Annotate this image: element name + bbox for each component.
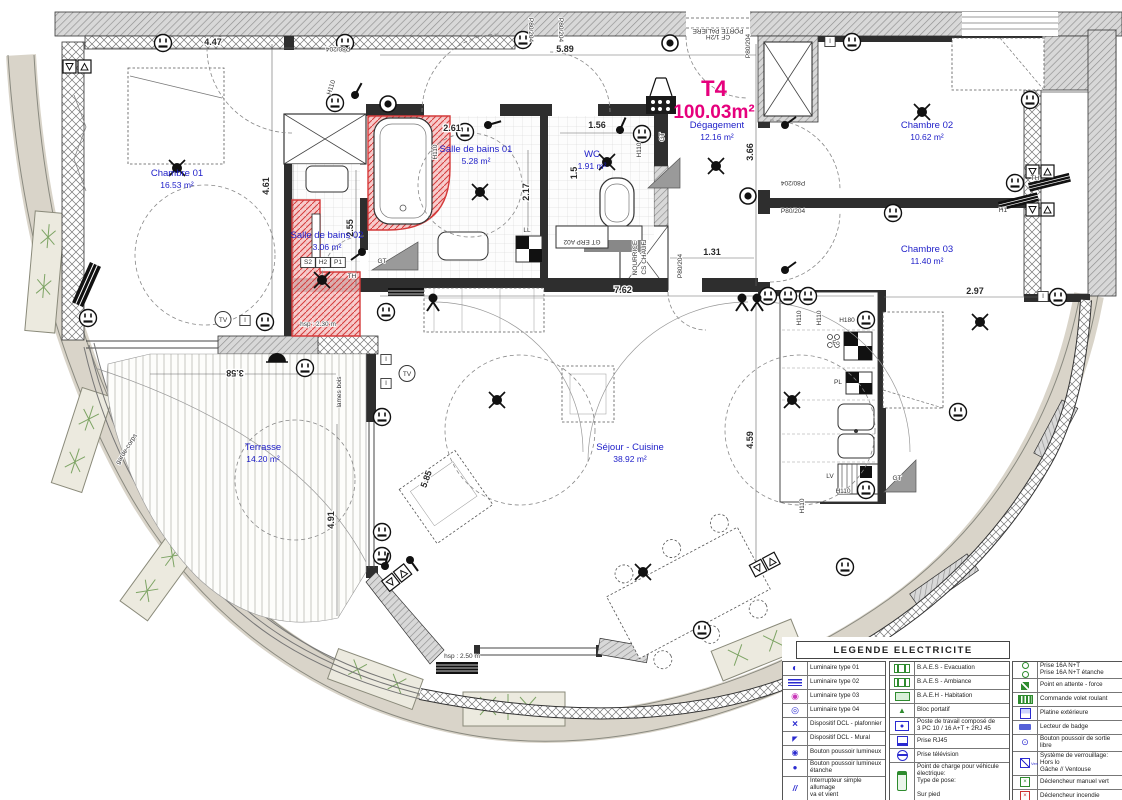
bathtub	[374, 118, 432, 224]
tag-p80-204: P80/204	[677, 254, 684, 279]
svg-text:NOURRICE: NOURRICE	[632, 240, 639, 275]
wardrobe-chambre02	[952, 38, 1044, 90]
tag-pl: PL	[834, 379, 842, 386]
svg-text:I: I	[244, 317, 246, 324]
socket-symbol	[374, 524, 391, 541]
legend-row: Dispositif DCL - Mural	[783, 732, 885, 746]
svg-text:TV: TV	[403, 371, 412, 378]
declencheur-incendie-icon	[1013, 790, 1038, 800]
svg-text:H110: H110	[835, 488, 850, 495]
tag-p80-204: P80/204	[326, 45, 351, 52]
svg-text:H180: H180	[839, 317, 855, 324]
tag-h110: H110	[432, 144, 439, 159]
tag-p1: P1	[331, 258, 346, 268]
svg-text:5.28 m²: 5.28 m²	[462, 156, 491, 166]
tag-i: I	[240, 316, 250, 326]
svg-text:WC: WC	[584, 149, 600, 160]
dcl-mural-icon	[783, 732, 808, 745]
tag-fo: Fo	[832, 340, 840, 347]
sink	[838, 434, 874, 458]
dimension-label: 3.58	[226, 368, 244, 378]
baes-ambiance-icon	[890, 676, 915, 689]
tag-tv: TV	[215, 312, 231, 328]
svg-text:38.92 m²: 38.92 m²	[613, 454, 647, 464]
tag-p80-204: P80/204	[781, 208, 806, 215]
legend-row: Commande volet roulant	[1013, 693, 1122, 707]
spot-symbol	[662, 35, 678, 51]
legend-label: Luminaire type 03	[808, 692, 861, 701]
legend-label: Déclencheur manuel vert	[1038, 778, 1111, 787]
svg-text:GT ERP A02: GT ERP A02	[563, 238, 600, 245]
svg-text:P80/204: P80/204	[326, 45, 351, 52]
legend-row: Déclencheur manuel vert	[1013, 776, 1122, 790]
legend-label: Luminaire type 01	[808, 664, 861, 673]
socket-symbol	[800, 288, 817, 305]
apartment-area-label: 100.03m²	[673, 102, 754, 123]
socket-symbol	[694, 622, 711, 639]
legend-column-2: B.A.E.S - EvacuationB.A.E.S - AmbianceB.…	[889, 661, 1010, 800]
svg-text:1.91 m²: 1.91 m²	[578, 161, 607, 171]
tag-h110: H110	[816, 310, 823, 325]
svg-text:P1: P1	[334, 259, 342, 266]
bouton-poussoir-icon	[783, 746, 808, 759]
tag-gt-erp-a02: GT ERP A02	[563, 238, 600, 245]
attente-force-icon	[1013, 679, 1038, 692]
tag-lames-bois: lames bois	[336, 376, 343, 408]
socket-symbol	[780, 288, 797, 305]
svg-text:Chambre 02: Chambre 02	[901, 120, 953, 131]
borne-ve-icon	[890, 763, 915, 800]
legend-label: B.A.E.S - Ambiance	[915, 678, 973, 687]
tag-h2: H2	[316, 258, 331, 268]
socket-symbol	[858, 482, 875, 499]
socket-symbol	[1050, 289, 1067, 306]
svg-text:11.40 m²: 11.40 m²	[911, 256, 944, 266]
east-window-band	[1024, 90, 1041, 296]
legend-row: B.A.E.S - Ambiance	[890, 676, 1009, 690]
legend-label: Point de charge pour véhicule électrique…	[915, 763, 1001, 800]
dimension-label: 7.62	[614, 285, 632, 295]
svg-text:H110: H110	[636, 142, 643, 157]
prise-rj45-icon	[890, 735, 915, 748]
tag-h110: H110	[796, 310, 803, 325]
svg-text:TH: TH	[1031, 175, 1040, 182]
legend-label: Lecteur de badge	[1038, 723, 1090, 732]
socket-symbol	[858, 312, 875, 329]
dcl-plafonnier-icon	[783, 718, 808, 731]
svg-text:P80/204: P80/204	[557, 18, 564, 43]
svg-text:16.53 m²: 16.53 m²	[160, 180, 194, 190]
legend-title: LEGENDE ELECTRICITE	[796, 641, 1010, 659]
dimension-label: 4.47	[204, 37, 222, 47]
commande-volet-icon	[1013, 693, 1038, 706]
apartment-type-label: T4	[701, 76, 727, 101]
tag-cf-1-2h: CF 1/2H	[706, 33, 731, 40]
svg-text:H2: H2	[319, 259, 328, 266]
luminaire-03-icon	[783, 690, 808, 703]
baes-evacuation-icon	[890, 662, 915, 675]
luminaire-01-icon	[783, 662, 808, 675]
svg-text:H110: H110	[432, 144, 439, 159]
svg-text:lames bois: lames bois	[336, 376, 343, 408]
tag-lv: LV	[826, 473, 834, 480]
verrouillage-icon	[1013, 752, 1038, 775]
tag-p80-204: P80/204	[557, 18, 564, 43]
tag-ll: LL	[523, 227, 531, 234]
tag-th: TH	[1031, 175, 1040, 182]
svg-text:14.20 m²: 14.20 m²	[246, 454, 280, 464]
svg-text:TV: TV	[219, 317, 228, 324]
inter-va-et-vient-icon	[783, 777, 808, 800]
bouton-sortie-libre-icon	[1013, 735, 1038, 751]
svg-text:I: I	[829, 38, 831, 45]
svg-text:LL: LL	[523, 227, 531, 234]
tag-hsp-2-30-m: hsp : 2.30 m	[300, 321, 336, 328]
svg-text:I: I	[1042, 293, 1044, 300]
svg-text:CS CHAUF: CS CHAUF	[641, 241, 648, 274]
svg-text:S2: S2	[304, 259, 312, 266]
tag-p80-204: P80/204	[527, 18, 534, 43]
prise-television-icon	[890, 749, 915, 762]
svg-text:hsp : 2.50 m: hsp : 2.50 m	[444, 653, 480, 660]
socket-symbol	[327, 95, 344, 112]
socket-symbol	[837, 559, 854, 576]
dimension-label: 2.61	[443, 123, 461, 133]
legend-row: Luminaire type 03	[783, 690, 885, 704]
svg-text:12.16 m²: 12.16 m²	[700, 132, 734, 142]
electrical-legend: LEGENDE ELECTRICITE Luminaire type 01Lum…	[782, 637, 1122, 800]
legend-label: Dispositif DCL - plafonnier	[808, 720, 884, 729]
svg-text:PORTE PALIERE: PORTE PALIERE	[692, 27, 744, 34]
tag-p80-204: P80/204	[781, 179, 806, 186]
legend-label: Prise 16A N+T Prise 16A N+T étanche	[1038, 662, 1106, 678]
luminaire-02-icon	[783, 676, 808, 689]
legend-column-1: Luminaire type 01Luminaire type 02Lumina…	[782, 661, 886, 800]
legend-row: Luminaire type 02	[783, 676, 885, 690]
tag-gt: GT	[892, 475, 901, 482]
svg-text:TH: TH	[348, 273, 357, 280]
svg-text:P80/204: P80/204	[781, 208, 806, 215]
legend-label: Commande volet roulant	[1038, 695, 1109, 704]
tag-h110: H110	[636, 142, 643, 157]
tag-cs-chauf: CS CHAUF	[641, 241, 648, 274]
svg-text:GT: GT	[377, 258, 386, 265]
legend-label: B.A.E.H - Habitation	[915, 692, 974, 701]
svg-text:Chambre 03: Chambre 03	[901, 244, 953, 255]
svg-text:P80/204: P80/204	[677, 254, 684, 279]
legend-label: Interrupteur simple allumage va et vient	[808, 777, 885, 800]
socket-symbol	[297, 360, 314, 377]
svg-text:3.06 m²: 3.06 m²	[313, 242, 342, 252]
socket-symbol	[1022, 92, 1039, 109]
socket-symbol	[885, 205, 902, 222]
dimension-label: 5.89	[556, 44, 574, 54]
bouton-poussoir-etanche-icon	[783, 760, 808, 776]
socket-symbol	[257, 314, 274, 331]
tag-hsp-2-50-m: hsp : 2.50 m	[444, 653, 480, 660]
sink	[838, 404, 874, 430]
dimension-label: 4.59	[745, 431, 755, 449]
legend-row: Système de verrouillage: Hors lo Gâche /…	[1013, 752, 1122, 776]
sofa	[424, 288, 544, 332]
legend-row: Poste de travail composé de 3 PC 10 / 16…	[890, 718, 1009, 735]
svg-text:P80/204: P80/204	[781, 179, 806, 186]
socket-symbol	[1007, 175, 1024, 192]
legend-column-3: Prise 16A N+T Prise 16A N+T étanchePoint…	[1012, 661, 1122, 800]
legend-label: B.A.E.S - Evacuation	[915, 664, 977, 673]
bed-chambre03	[883, 312, 943, 408]
socket-symbol	[950, 404, 967, 421]
spot-symbol	[740, 188, 756, 204]
legend-label: Bouton poussoir lumineux	[808, 748, 883, 757]
legend-row: B.A.E.H - Habitation	[890, 690, 1009, 704]
legend-label: Platine extérieure	[1038, 709, 1090, 718]
dimension-label: 3.66	[745, 143, 755, 161]
tag-i: I	[381, 355, 391, 365]
north-window-band	[85, 36, 515, 49]
poste-travail-icon	[890, 718, 915, 734]
legend-row: Lecteur de badge	[1013, 721, 1122, 735]
legend-label: Déclencheur incendie	[1038, 792, 1102, 800]
svg-text:Chambre 01: Chambre 01	[151, 168, 203, 179]
tag-h1: H1	[999, 207, 1008, 214]
tag-i: I	[381, 379, 391, 389]
tag-gt: GT	[377, 258, 386, 265]
legend-row: Dispositif DCL - plafonnier	[783, 718, 885, 732]
legend-label: Prise télévision	[915, 751, 961, 760]
svg-text:P80/204: P80/204	[745, 34, 752, 59]
socket-symbol	[634, 126, 651, 143]
lecteur-badge-icon	[1013, 721, 1038, 734]
legend-row: Platine extérieure	[1013, 707, 1122, 721]
dimension-label: 2.97	[966, 286, 984, 296]
socket-symbol	[155, 35, 172, 52]
legend-row: Point en attente - force	[1013, 679, 1122, 693]
legend-row: Point de charge pour véhicule électrique…	[890, 763, 1009, 800]
legend-row: Luminaire type 01	[783, 662, 885, 676]
baeh-habitation-icon	[890, 690, 915, 703]
legend-label: Point en attente - force	[1038, 681, 1105, 690]
svg-text:CF 1/2H: CF 1/2H	[706, 33, 731, 40]
socket-symbol	[760, 288, 777, 305]
dimension-label: 2.17	[521, 183, 531, 201]
dimension-label: 1.31	[703, 247, 721, 257]
platine-exterieure-icon	[1013, 707, 1038, 720]
tag-porte-paliere: PORTE PALIERE	[692, 27, 744, 34]
svg-text:hsp : 2.30 m: hsp : 2.30 m	[300, 321, 336, 328]
legend-row: Prise télévision	[890, 749, 1009, 763]
tag-tv: TV	[399, 366, 415, 382]
legend-row: Prise RJ45	[890, 735, 1009, 749]
svg-text:Fo: Fo	[832, 340, 840, 347]
legend-label: Prise RJ45	[915, 737, 949, 746]
legend-label: Poste de travail composé de 3 PC 10 / 16…	[915, 718, 997, 734]
bed-chambre01	[128, 68, 224, 164]
svg-text:H110: H110	[816, 310, 823, 325]
legend-row: B.A.E.S - Evacuation	[890, 662, 1009, 676]
svg-text:LV: LV	[826, 473, 834, 480]
dimension-label: 4.61	[261, 177, 271, 195]
svg-text:Terrasse: Terrasse	[245, 442, 281, 453]
north-structural-wall	[55, 12, 1122, 36]
tag-p80-204: P80/204	[745, 34, 752, 59]
legend-label: Dispositif DCL - Mural	[808, 734, 872, 743]
legend-label: Luminaire type 04	[808, 706, 861, 715]
tag-nourrice: NOURRICE	[632, 240, 639, 275]
socket-symbol	[378, 304, 395, 321]
svg-text:H110: H110	[796, 310, 803, 325]
legend-row: Interrupteur simple allumage va et vient	[783, 777, 885, 800]
svg-text:GT: GT	[892, 475, 901, 482]
bloc-portatif-icon	[890, 704, 915, 717]
legend-label: Bloc portatif	[915, 706, 952, 715]
washbasin-sdb02	[306, 166, 348, 192]
east-structural-wall	[1088, 30, 1116, 296]
svg-text:Salle de bains 02: Salle de bains 02	[291, 230, 364, 241]
svg-text:I: I	[385, 380, 387, 387]
svg-text:P80/204: P80/204	[527, 18, 534, 43]
tag-h110: H110	[835, 488, 850, 495]
dimension-label: 1.56	[588, 120, 606, 130]
legend-label: Luminaire type 02	[808, 678, 861, 687]
svg-text:Séjour - Cuisine: Séjour - Cuisine	[596, 442, 664, 453]
legend-row: Bouton poussoir lumineux	[783, 746, 885, 760]
svg-text:Salle de bains 01: Salle de bains 01	[440, 144, 513, 155]
legend-row: Bouton poussoir lumineux étanche	[783, 760, 885, 777]
svg-text:H1: H1	[999, 207, 1008, 214]
legend-row: Bouton poussoir de sortie libre	[1013, 735, 1122, 752]
luminaire-04-icon	[783, 704, 808, 717]
dimension-label: 4.91	[326, 511, 336, 529]
svg-text:H110: H110	[799, 498, 806, 513]
spot-symbol	[380, 96, 396, 112]
tag-i: I	[1038, 292, 1048, 302]
svg-text:GT: GT	[659, 132, 666, 141]
tag-s2: S2	[301, 258, 316, 268]
socket-symbol	[80, 310, 97, 327]
legend-label: Bouton poussoir lumineux étanche	[808, 760, 883, 776]
legend-row: Luminaire type 04	[783, 704, 885, 718]
declencheur-manuel-vert-icon	[1013, 776, 1038, 789]
legend-row: Déclencheur incendie	[1013, 790, 1122, 800]
tag-i: I	[825, 37, 835, 47]
floor-plan-stage: 4.475.892.611.564.612.552.171.53.661.317…	[0, 0, 1122, 800]
svg-text:10.62 m²: 10.62 m²	[910, 132, 944, 142]
svg-text:I: I	[385, 356, 387, 363]
socket-symbol	[374, 409, 391, 426]
legend-row: Bloc portatif	[890, 704, 1009, 718]
prise-16a-icon	[1013, 662, 1038, 678]
tag-h180: H180	[839, 317, 855, 324]
tag-h110: H110	[799, 498, 806, 513]
legend-row: Prise 16A N+T Prise 16A N+T étanche	[1013, 662, 1122, 679]
tag-th: TH	[348, 273, 357, 280]
svg-text:PL: PL	[834, 379, 842, 386]
socket-symbol	[844, 34, 861, 51]
legend-label: Bouton poussoir de sortie libre	[1038, 735, 1122, 751]
legend-label: Système de verrouillage: Hors lo Gâche /…	[1038, 752, 1122, 775]
tag-gt: GT	[659, 132, 666, 141]
